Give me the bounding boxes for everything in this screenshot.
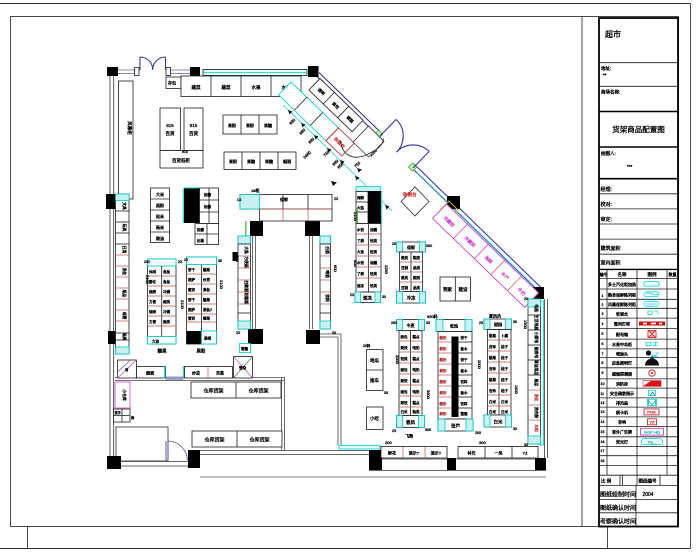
svg-text:虴类: 虴类 [370, 249, 378, 254]
svg-text:30X: 30X [426, 244, 433, 248]
svg-text:咯奶: 咯奶 [413, 389, 421, 394]
svg-text:编号: 编号 [600, 271, 608, 277]
svg-text:建筑面积: 建筑面积 [601, 245, 621, 252]
svg-text:果仳2: 果仳2 [203, 307, 212, 312]
svg-text:鲜奶: 鲜奶 [440, 390, 448, 395]
svg-text:洗手: 洗手 [115, 410, 122, 415]
svg-text:根萨: 根萨 [188, 307, 195, 312]
svg-text:蔬菜: 蔬菜 [222, 84, 231, 91]
svg-text:了鲜: 了鲜 [357, 238, 365, 243]
svg-text:鲜花: 鲜花 [388, 450, 396, 456]
svg-text:杏珍: 杏珍 [489, 366, 497, 371]
svg-text:斯饺: 斯饺 [401, 400, 409, 405]
svg-text:板木: 板木 [461, 346, 469, 351]
svg-text:收银台: 收银台 [616, 311, 628, 317]
svg-text:900: 900 [353, 260, 358, 267]
svg-text:2X: 2X [479, 321, 484, 325]
svg-text:粮油: 粮油 [156, 235, 164, 241]
svg-text:糖果: 糖果 [203, 267, 210, 272]
svg-text:糕点: 糕点 [413, 356, 421, 361]
svg-text:校对:: 校对: [601, 201, 612, 208]
svg-text:白米: 白米 [494, 419, 503, 426]
svg-text:花雒酒: 花雒酒 [244, 292, 249, 304]
svg-text:咯奶: 咯奶 [413, 345, 421, 350]
svg-text:饺类: 饺类 [370, 271, 378, 276]
svg-text:排风扇: 排风扇 [616, 400, 628, 406]
svg-text:2250: 2250 [384, 265, 389, 275]
svg-text:考察确认时间: 考察确认时间 [600, 518, 636, 526]
svg-text:方便: 方便 [149, 319, 156, 324]
svg-text:图纸绘制时间: 图纸绘制时间 [600, 491, 636, 499]
svg-text:600: 600 [235, 255, 240, 262]
svg-text:仓库货架: 仓库货架 [248, 388, 268, 395]
svg-text:文具: 文具 [122, 202, 127, 210]
svg-text:2100: 2100 [180, 300, 185, 310]
svg-text:松米: 松米 [156, 213, 164, 219]
svg-text:**: ** [603, 73, 607, 78]
svg-text:果仳: 果仳 [203, 287, 210, 292]
svg-text:品类: 品类 [413, 265, 421, 270]
svg-text:915: 915 [182, 150, 188, 154]
svg-text:酸奶: 酸奶 [440, 379, 448, 384]
svg-text:一凤: 一凤 [495, 451, 503, 456]
svg-text:松糠: 松糠 [197, 227, 204, 232]
svg-text:12: 12 [601, 401, 605, 405]
svg-text:收银台: 收银台 [403, 191, 417, 198]
svg-text:糕点: 糕点 [413, 378, 421, 383]
svg-text:3: 3 [602, 312, 604, 316]
svg-text:2X: 2X [524, 297, 529, 301]
svg-text:冲调: 冲调 [163, 289, 170, 294]
svg-text:室内面积: 室内面积 [601, 260, 621, 267]
svg-text:推车: 推车 [370, 377, 379, 384]
svg-text:2100: 2100 [353, 212, 358, 222]
svg-text:苦荔: 苦荔 [216, 370, 224, 376]
svg-text:面包: 面包 [401, 389, 409, 394]
svg-text:刷卡机: 刷卡机 [616, 409, 628, 415]
svg-text:7: 7 [602, 352, 604, 356]
svg-text:30: 30 [524, 443, 528, 447]
svg-text:糕点: 糕点 [413, 400, 421, 405]
svg-text:消防栓: 消防栓 [616, 381, 628, 387]
svg-text:1800: 1800 [514, 385, 519, 395]
svg-text:斯饺: 斯饺 [401, 345, 409, 350]
svg-text:音响: 音响 [618, 419, 626, 425]
svg-text:糖果: 糖果 [203, 297, 210, 302]
svg-text:1X: 1X [237, 198, 242, 202]
svg-text:酸奶: 酸奶 [440, 357, 448, 362]
svg-text:货架商品配置图: 货架商品配置图 [612, 124, 665, 134]
svg-text:螺果: 螺果 [203, 316, 210, 321]
svg-text:甜园: 甜园 [494, 321, 502, 327]
svg-text:熟食保鲜陈列柜: 熟食保鲜陈列柜 [608, 292, 636, 298]
svg-text:百货: 百货 [166, 130, 175, 137]
svg-text:糖果: 糖果 [158, 348, 167, 355]
svg-text:3X: 3X [332, 331, 337, 335]
svg-text:蔬菜: 蔬菜 [192, 84, 201, 91]
svg-text:蛋类: 蛋类 [401, 255, 409, 260]
svg-text:烟酒: 烟酒 [146, 370, 154, 376]
svg-text:冷冻: 冷冻 [407, 295, 416, 302]
svg-text:3X: 3X [513, 427, 518, 431]
svg-text:风幕保鲜陈列柜: 风幕保鲜陈列柜 [608, 301, 636, 307]
svg-text:荧光灯: 荧光灯 [616, 439, 628, 445]
svg-text:速冻: 速冻 [363, 295, 372, 302]
svg-text:饺类: 饺类 [370, 238, 378, 243]
svg-text:品类: 品类 [413, 285, 421, 290]
svg-text:18: 18 [601, 459, 605, 463]
svg-text:2X: 2X [392, 429, 397, 433]
svg-text:地址:: 地址: [601, 65, 611, 71]
svg-text:根萨: 根萨 [188, 277, 195, 282]
svg-text:斯饺: 斯饺 [401, 378, 409, 383]
svg-text:审定:: 审定: [601, 216, 612, 223]
svg-text:饼干: 饼干 [461, 357, 469, 362]
svg-text:汤圆: 汤圆 [370, 260, 378, 265]
svg-text:名称: 名称 [618, 271, 627, 278]
svg-text:板木: 板木 [461, 368, 469, 373]
svg-text:桔子: 桔子 [501, 377, 509, 382]
svg-text:白酒: 白酒 [325, 246, 330, 254]
svg-text:饮料: 饮料 [461, 379, 469, 384]
svg-text:百货低柜: 百货低柜 [172, 157, 190, 164]
svg-text:方便: 方便 [149, 299, 156, 304]
svg-text:大米: 大米 [156, 191, 164, 197]
svg-text:915: 915 [166, 123, 174, 128]
svg-text:30: 30 [218, 259, 222, 263]
svg-text:鲜奶: 鲜奶 [440, 368, 448, 373]
svg-text:到家: 到家 [443, 286, 452, 292]
svg-text:大鱼: 大鱼 [357, 249, 365, 254]
svg-text:日用: 日用 [122, 246, 127, 254]
svg-text:白米: 白米 [401, 409, 409, 414]
svg-text:面类: 面类 [163, 299, 170, 304]
svg-text:鲜奶: 鲜奶 [440, 411, 448, 416]
svg-text:30X: 30X [425, 428, 432, 432]
svg-text:果糖: 果糖 [247, 158, 255, 164]
svg-text:雪籱: 雪籱 [241, 346, 248, 351]
svg-text:配电箱: 配电箱 [616, 331, 628, 337]
svg-text:6: 6 [602, 342, 604, 346]
svg-text:生活电器: 生活电器 [534, 315, 539, 330]
svg-text:籼类: 籼类 [413, 409, 421, 414]
svg-text:桔子: 桔子 [501, 344, 509, 349]
svg-text:洗化: 洗化 [122, 268, 127, 276]
svg-text:炒货: 炒货 [192, 370, 200, 376]
svg-text:汤圆: 汤圆 [370, 227, 378, 232]
svg-text:间: 间 [131, 415, 134, 420]
svg-text:果糖: 果糖 [265, 158, 273, 164]
svg-text:桔子: 桔子 [501, 388, 509, 393]
svg-text:13: 13 [601, 410, 605, 414]
svg-text:饼干: 饼干 [461, 335, 469, 340]
svg-text:烧烤: 烧烤 [149, 309, 156, 314]
svg-text:大虱: 大虱 [357, 205, 365, 210]
svg-text:今麦: 今麦 [407, 322, 415, 328]
svg-text:母婴: 母婴 [122, 312, 126, 320]
svg-text:夏凤风: 夏凤风 [489, 313, 501, 319]
svg-text:洗化: 洗化 [534, 394, 539, 402]
svg-text:春凤: 春凤 [406, 419, 415, 426]
svg-text:方便面: 方便面 [244, 256, 249, 268]
svg-text:2000: 2000 [477, 360, 482, 370]
svg-text:10: 10 [601, 382, 605, 386]
svg-text:整列灯带: 整列灯带 [614, 321, 630, 327]
svg-text:白米: 白米 [489, 399, 497, 404]
svg-text:整箱: 整箱 [461, 411, 469, 416]
svg-text:应急照明灯: 应急照明灯 [612, 360, 632, 366]
svg-text:纸品: 纸品 [534, 379, 539, 387]
svg-text:30: 30 [384, 391, 388, 395]
svg-text:200: 200 [385, 440, 392, 445]
svg-text:清洁用品: 清洁用品 [534, 360, 539, 375]
svg-text:风幕柜: 风幕柜 [126, 121, 133, 135]
svg-text:图纸确认时间: 图纸确认时间 [600, 504, 636, 512]
svg-text:建设: 建设 [459, 286, 468, 293]
svg-text:板木: 板木 [461, 390, 469, 395]
svg-text:300: 300 [479, 440, 486, 445]
svg-text:数量: 数量 [669, 271, 677, 277]
svg-text:2X: 2X [184, 258, 189, 262]
svg-text:雨具: 雨具 [122, 333, 127, 341]
svg-text:15: 15 [601, 430, 605, 434]
svg-text:绘图人:: 绘图人: [601, 150, 616, 157]
svg-text:张芦: 张芦 [451, 423, 460, 430]
svg-text:厨房电: 厨房电 [534, 347, 539, 359]
svg-text:20: 20 [392, 242, 396, 246]
svg-text:水果中岛柜: 水果中岛柜 [612, 341, 632, 347]
svg-text:2X: 2X [236, 331, 241, 335]
svg-text:白米: 白米 [489, 409, 497, 414]
svg-text:20X: 20X [391, 321, 398, 325]
svg-text:YG…: YG… [647, 440, 656, 444]
svg-text:鲜奶: 鲜奶 [440, 346, 448, 351]
svg-text:面包: 面包 [401, 334, 409, 339]
svg-text:YX: YX [649, 420, 655, 425]
svg-text:速冻: 速冻 [357, 283, 365, 288]
svg-text:商场名称:: 商场名称: [601, 89, 620, 96]
svg-text:仓库货架: 仓库货架 [204, 437, 224, 444]
svg-text:2X: 2X [334, 197, 339, 201]
svg-text:糕点: 糕点 [413, 334, 421, 339]
svg-text:饼干: 饼干 [188, 267, 195, 272]
svg-text:烧烤: 烧烤 [149, 289, 156, 294]
svg-text:烟酒: 烟酒 [283, 158, 291, 164]
svg-text:果粉: 果粉 [228, 122, 236, 128]
svg-text:经理:: 经理: [601, 186, 612, 193]
svg-text:3X: 3X [426, 321, 431, 325]
svg-text:饮料: 饮料 [461, 401, 469, 406]
svg-text:杉梨: 杉梨 [197, 238, 204, 243]
svg-text:蜜饼: 蜜饼 [188, 287, 195, 292]
svg-text:多士汽化柜加热: 多士汽化柜加热 [608, 281, 636, 287]
svg-text:2100: 2100 [219, 280, 224, 290]
svg-text:演示Y: 演示Y [431, 450, 442, 456]
svg-text:白米: 白米 [501, 399, 509, 404]
svg-text:比 例: 比 例 [601, 478, 612, 485]
svg-text:纸品: 纸品 [122, 290, 127, 298]
svg-text:8: 8 [602, 361, 604, 365]
svg-text:百货: 百货 [189, 130, 198, 137]
svg-text:果糖: 果糖 [264, 122, 272, 128]
svg-text:感烟探测器: 感烟探测器 [612, 371, 632, 377]
svg-text:5: 5 [602, 332, 604, 336]
svg-text:2X: 2X [178, 260, 183, 264]
svg-text:衬托: 衬托 [468, 450, 476, 456]
svg-text:14: 14 [601, 420, 605, 424]
svg-text:了鲜: 了鲜 [357, 271, 365, 276]
svg-text:2004: 2004 [642, 492, 653, 498]
svg-text:30: 30 [382, 295, 386, 299]
svg-text:大虱: 大虱 [244, 246, 249, 254]
svg-text:11: 11 [601, 392, 605, 396]
svg-text:保鲜: 保鲜 [407, 244, 415, 250]
svg-text:甜果: 甜果 [489, 377, 497, 382]
svg-text:1500: 1500 [523, 320, 528, 330]
svg-text:2X: 2X [350, 293, 355, 297]
svg-text:甜果: 甜果 [489, 355, 497, 360]
svg-text:30: 30 [513, 320, 517, 324]
svg-text:食品: 食品 [163, 279, 170, 284]
svg-text:水饺: 水饺 [357, 227, 365, 232]
svg-text:面包: 面包 [401, 367, 409, 372]
svg-text:饺类: 饺类 [370, 283, 378, 288]
svg-text:电器: 电器 [534, 304, 539, 312]
svg-text:16: 16 [601, 440, 605, 444]
svg-text:杨米: 杨米 [156, 224, 164, 230]
svg-text:POS: POS [647, 410, 656, 415]
svg-text:海鲜: 海鲜 [357, 195, 365, 200]
svg-text:休闲: 休闲 [149, 269, 156, 274]
svg-text:2100: 2100 [145, 275, 150, 285]
svg-text:饼干: 饼干 [188, 297, 195, 302]
svg-text:冲调: 冲调 [163, 309, 170, 314]
svg-text:面粉: 面粉 [156, 202, 164, 208]
svg-text:熙类: 熙类 [413, 255, 421, 260]
svg-text:松糠: 松糠 [204, 192, 211, 197]
svg-text:杏珍: 杏珍 [489, 388, 497, 393]
svg-text:玩具: 玩具 [122, 224, 127, 232]
svg-text:图纸编号: 图纸编号 [639, 478, 657, 485]
svg-text:果粉: 果粉 [229, 158, 237, 164]
svg-text:17: 17 [601, 449, 605, 453]
svg-text:20X: 20X [144, 260, 151, 264]
svg-text:1: 1 [602, 294, 604, 298]
svg-text:***: *** [627, 164, 633, 169]
svg-text:600: 600 [333, 265, 338, 272]
svg-text:喷淋头: 喷淋头 [616, 351, 628, 357]
svg-text:超市: 超市 [605, 29, 621, 39]
svg-text:小仓库: 小仓库 [122, 389, 127, 401]
svg-text:4: 4 [602, 322, 604, 326]
svg-text:1#柜: 1#柜 [251, 187, 259, 193]
svg-text:蜜饼: 蜜饼 [188, 316, 195, 321]
svg-text:食品: 食品 [163, 269, 170, 274]
svg-text:松糠: 松糠 [204, 204, 211, 209]
svg-text:图例: 图例 [648, 271, 657, 278]
svg-text:杏珍: 杏珍 [489, 344, 497, 349]
svg-text:果粉: 果粉 [197, 348, 206, 355]
svg-text:水柦: 水柦 [534, 424, 539, 432]
svg-text:饺类: 饺类 [401, 356, 409, 361]
svg-text:酸奶: 酸奶 [440, 401, 448, 406]
svg-text:演示Y: 演示Y [409, 450, 420, 456]
svg-text:登染: 登染 [239, 365, 246, 370]
svg-text:大油: 大油 [152, 339, 159, 344]
svg-text:甜果: 甜果 [489, 333, 497, 338]
svg-text:白米: 白米 [501, 409, 509, 414]
svg-text:仓库货架: 仓库货架 [249, 437, 269, 444]
svg-text:桔子: 桔子 [501, 366, 509, 371]
svg-text:飞舞: 飞舞 [405, 433, 413, 439]
svg-text:咯奶: 咯奶 [413, 367, 421, 372]
svg-text:白粮酒: 白粮酒 [244, 280, 249, 292]
svg-text:保鲜: 保鲜 [280, 196, 288, 202]
svg-text:有: 有 [125, 367, 129, 372]
svg-text:室外广告牌: 室外广告牌 [612, 429, 632, 435]
svg-text:乾烛: 乾烛 [450, 323, 458, 329]
svg-text:饮料: 饮料 [325, 294, 330, 302]
svg-text:小吃: 小吃 [370, 415, 379, 422]
svg-text:豆制: 豆制 [401, 285, 409, 290]
svg-text:仓库货架: 仓库货架 [203, 388, 223, 395]
svg-text:3600: 3600 [426, 390, 431, 400]
svg-text:安全疏散指示: 安全疏散指示 [610, 390, 634, 396]
svg-text:20X: 20X [475, 431, 482, 435]
svg-text:地瓜: 地瓜 [370, 357, 379, 363]
svg-text:果晒: 果晒 [204, 336, 211, 341]
svg-text:GGP·HD: GGP·HD [644, 430, 660, 435]
svg-text:2000: 2000 [395, 355, 400, 365]
svg-text:炒货: 炒货 [203, 277, 210, 282]
svg-text:酸奶: 酸奶 [440, 335, 448, 340]
svg-text:蛋类: 蛋类 [401, 275, 409, 280]
svg-text:面类: 面类 [163, 319, 170, 324]
svg-text:小家电: 小家电 [534, 332, 539, 344]
svg-text:9: 9 [602, 371, 604, 375]
svg-text:桔子: 桔子 [501, 355, 509, 360]
svg-text:950料: 950料 [427, 313, 438, 319]
svg-text:洗衣粉: 洗衣粉 [534, 407, 539, 419]
svg-text:2: 2 [602, 303, 604, 307]
svg-text:915: 915 [190, 123, 198, 128]
svg-text:豆制: 豆制 [401, 265, 409, 270]
svg-text:存包: 存包 [168, 80, 176, 86]
svg-text:水果: 水果 [252, 84, 261, 91]
svg-text:熙类: 熙类 [413, 275, 421, 280]
svg-text:20料: 20料 [363, 343, 371, 348]
svg-text:果粉: 果粉 [246, 122, 254, 128]
svg-text:卜靡: 卜靡 [501, 333, 509, 338]
svg-text:啤酒: 啤酒 [325, 270, 330, 278]
svg-text:YZ: YZ [522, 451, 528, 456]
